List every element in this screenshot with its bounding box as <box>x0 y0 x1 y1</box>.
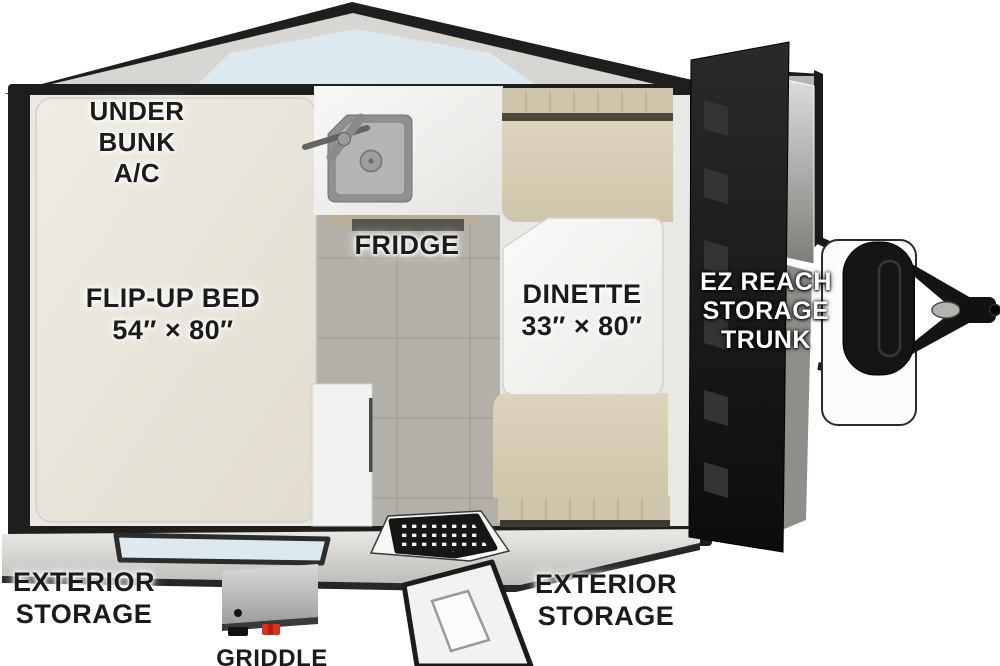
griddle-foot <box>228 627 248 636</box>
bottom-bench-seam <box>500 520 670 527</box>
label-line: STORAGE <box>13 598 155 630</box>
entry-step-mat-dots <box>397 520 487 552</box>
label-line: UNDER <box>90 96 185 127</box>
label-fridge: FRIDGE <box>354 229 459 261</box>
label-line: 54″ × 80″ <box>86 314 261 346</box>
trunk-right-wall-edge <box>814 70 823 248</box>
label-line: EXTERIOR <box>13 566 155 598</box>
label-line: DINETTE <box>521 278 642 310</box>
griddle-knob <box>234 609 242 617</box>
floorplan-canvas: UNDER BUNK A/C FLIP-UP BED 54″ × 80″ FRI… <box>0 0 1000 666</box>
tongue-jack <box>932 302 960 318</box>
top-bench-seam <box>502 113 673 121</box>
bottom-bench-band <box>498 496 670 522</box>
griddle-valve-stripe <box>268 624 273 635</box>
front-window <box>116 535 328 563</box>
label-line: FLIP-UP BED <box>86 282 261 314</box>
top-bench-cushion <box>502 121 673 222</box>
label-ez-reach-storage-trunk: EZ REACH STORAGE TRUNK <box>700 268 832 355</box>
label-flip-up-bed: FLIP-UP BED 54″ × 80″ <box>86 282 261 346</box>
top-bench-backrest <box>502 88 673 115</box>
hitch-ball <box>990 305 1000 316</box>
label-exterior-storage-left: EXTERIOR STORAGE <box>13 566 155 630</box>
label-line: EZ REACH <box>700 268 832 297</box>
label-under-bunk-ac: UNDER BUNK A/C <box>90 96 185 189</box>
label-line: STORAGE <box>700 297 832 326</box>
label-exterior-storage-right: EXTERIOR STORAGE <box>535 568 677 632</box>
label-line: 33″ × 80″ <box>521 310 642 342</box>
wardrobe-edge <box>369 398 373 472</box>
label-griddle: GRIDDLE <box>216 645 328 666</box>
label-line: TRUNK <box>700 326 832 355</box>
label-line: BUNK <box>90 127 185 158</box>
label-line: EXTERIOR <box>535 568 677 600</box>
faucet-base <box>338 133 351 146</box>
sink-drain-hole <box>368 158 373 163</box>
wardrobe-cabinet <box>312 384 372 526</box>
label-dinette: DINETTE 33″ × 80″ <box>521 278 642 342</box>
bottom-bench-cushion <box>493 393 668 498</box>
galley <box>305 86 503 231</box>
label-line: A/C <box>90 158 185 189</box>
label-line: STORAGE <box>535 600 677 632</box>
hitch-assembly <box>818 240 1000 425</box>
griddle-appliance <box>222 564 318 636</box>
